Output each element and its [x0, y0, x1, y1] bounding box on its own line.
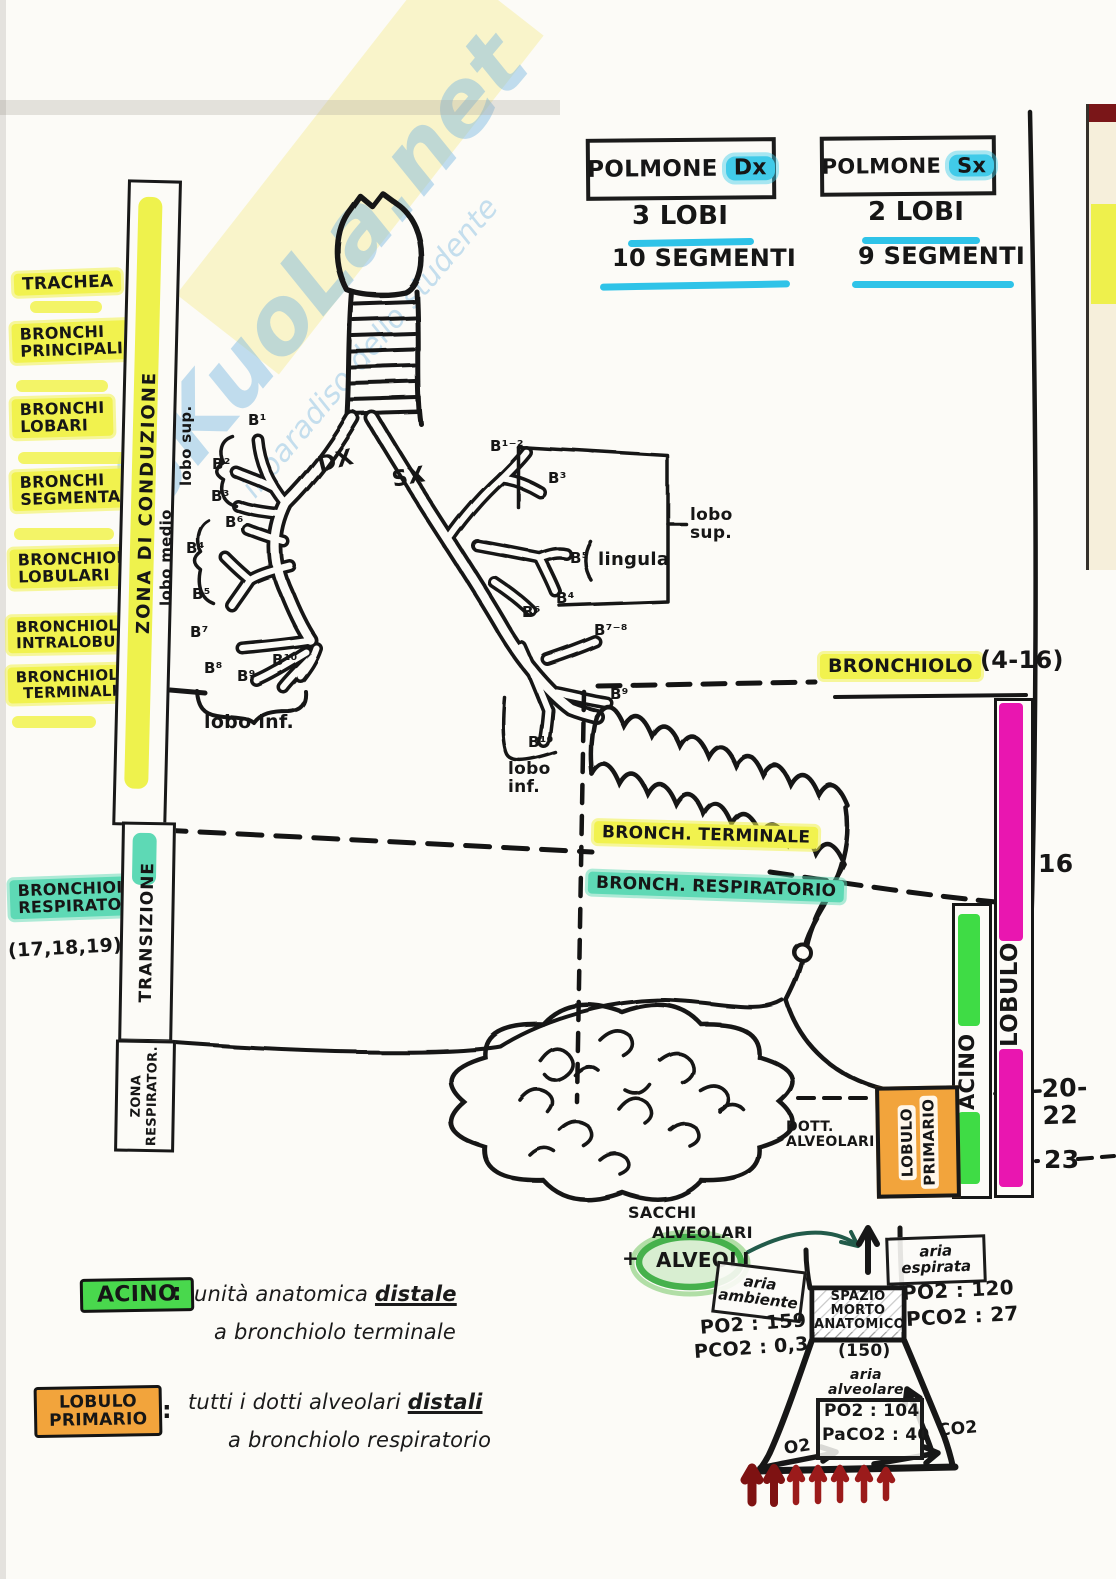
lobulo-primario-label-1: LOBULO: [898, 1105, 917, 1180]
left-lobo-sup: lobo sup.: [690, 506, 733, 543]
respiratory-zone-label-1: ZONA: [130, 1074, 145, 1117]
left-b1-2: B¹⁻²: [490, 438, 524, 454]
highlighter-mark: [30, 301, 102, 313]
right-b3: B³: [211, 488, 230, 504]
left-lung-side-badge: Sx: [949, 154, 994, 177]
lobulo-primario-definition-text: tutti i dotti alveolari: [188, 1390, 401, 1414]
lobulo-primario-definition-underlined: distali: [408, 1390, 483, 1414]
right-lobo-inf: lobo inf.: [204, 712, 294, 733]
lingula-label: lingula: [598, 550, 669, 569]
o2-label: O2: [783, 1436, 812, 1458]
highlighter-mark: [18, 452, 126, 464]
acino-highlight-bottom: [958, 1112, 980, 1184]
generation-16: 16: [1038, 850, 1073, 877]
right-lung-side-badge: Dx: [726, 156, 775, 180]
highlighter-mark: [12, 716, 96, 728]
alveolare-paco2: PaCO2 : 40: [822, 1426, 930, 1444]
right-lobo-medio: lobo medio: [158, 502, 174, 606]
lobulo-highlight-top: [999, 703, 1023, 941]
left-b4: B⁴: [556, 590, 575, 606]
right-b10: B¹⁰: [272, 652, 297, 668]
right-lung-lobes: 3 LOBI: [632, 202, 728, 230]
plus-sign: +: [622, 1248, 639, 1270]
acino-colon: :: [172, 1280, 182, 1306]
acino-definition-underlined: distale: [375, 1282, 457, 1306]
highlighter-mark: [14, 528, 114, 540]
transition-zone-bar: TRANSIZIONE: [118, 822, 176, 1043]
left-b10: B¹⁰: [528, 734, 553, 750]
acinus-alveoli-cluster: [451, 1005, 793, 1199]
left-lung-title-box: POLMONE Sx: [820, 135, 997, 197]
acino-definition-line1: unità anatomica distale: [194, 1282, 457, 1306]
capillary-blood-arrows: [745, 1468, 892, 1503]
lobulo-primario-box: LOBULO PRIMARIO: [875, 1085, 961, 1198]
aria-alveolare-label: aria alveolare: [828, 1368, 904, 1398]
lobulo-primario-term-box: LOBULO PRIMARIO: [34, 1385, 163, 1438]
co2-label: CO2: [937, 1418, 978, 1440]
transition-zone-label: TRANSIZIONE: [137, 862, 158, 1003]
left-b7-8: B⁷⁻⁸: [594, 622, 628, 638]
respiratory-zone-bar: ZONA RESPIRATOR.: [114, 1039, 176, 1152]
conduction-zone-label: ZONA DI CONDUZIONE: [134, 371, 160, 634]
left-lobo-inf: lobo inf.: [508, 760, 551, 797]
right-b2: B²: [212, 456, 231, 472]
lobulo-primario-label-2: PRIMARIO: [919, 1095, 939, 1188]
acino-definition-text: unità anatomica: [194, 1282, 368, 1306]
right-lung-title: POLMONE: [587, 156, 718, 182]
right-b1: B¹: [248, 412, 267, 428]
generation-20-22: 20-22: [1041, 1073, 1116, 1130]
left-lung-lobes: 2 LOBI: [868, 198, 964, 226]
right-b6: B⁶: [225, 514, 244, 530]
generation-23: 23: [1044, 1146, 1079, 1173]
dotti-alveolari-label: DOTT. ALVEOLARI: [786, 1120, 875, 1150]
acino-definition-line2: a bronchiolo terminale: [214, 1320, 456, 1344]
left-lung-segments-underline: [852, 281, 1014, 288]
left-lung-segments: 9 SEGMENTI: [858, 244, 1025, 270]
right-b5: B⁵: [192, 586, 211, 602]
right-lung-segments: 10 SEGMENTI: [612, 246, 796, 272]
left-b5: B⁵: [570, 550, 589, 566]
left-lung-title: POLMONE: [822, 154, 942, 178]
acino-bar-label: ACINO: [956, 1028, 979, 1110]
respiratory-bronchiole-duct: [591, 706, 957, 1097]
left-b3: B³: [548, 470, 567, 486]
lobulo-bar-label: LOBULO: [998, 943, 1023, 1047]
lobulo-primario-definition-line2: a bronchiolo respiratorio: [228, 1428, 491, 1452]
right-b7: B⁷: [190, 624, 209, 640]
sidebar-item-bronchi-principali: BRONCHI PRINCIPALI: [11, 320, 131, 363]
spazio-morto-label: SPAZIO MORTO ANATOMICO: [814, 1290, 902, 1332]
right-lung-title-box: POLMONE Dx: [586, 137, 777, 201]
lobulo-primario-colon: :: [162, 1398, 172, 1424]
bronchiolo-label: BRONCHIOLO: [820, 654, 981, 679]
lobulo-primario-definition-line1: tutti i dotti alveolari distali: [188, 1390, 483, 1414]
left-b9: B⁹: [610, 686, 629, 702]
acino-highlight-top: [958, 914, 980, 1026]
bronchiolo-range: (4-16): [980, 648, 1064, 674]
bronchial-tree: [195, 193, 686, 761]
scanned-notebook-page: SKuoLa.net il paradiso dello studente: [0, 0, 1116, 1579]
spazio-morto-volume: (150): [838, 1342, 891, 1360]
lobulo-highlight-bottom: [999, 1049, 1023, 1187]
right-b4: B⁴: [186, 540, 205, 556]
alveolare-po2: PO2 : 104: [824, 1402, 920, 1420]
sacchi-label: SACCHI: [628, 1204, 697, 1221]
sidebar-item-bronchi-lobari: BRONCHI LOBARI: [12, 397, 114, 438]
highlighter-mark: [16, 380, 108, 392]
right-b8: B⁸: [204, 660, 223, 676]
respiratory-zone-label-2: RESPIRATOR.: [145, 1046, 161, 1146]
sidebar-item-trachea: TRACHEA: [14, 270, 122, 296]
right-b9: B⁹: [237, 668, 256, 684]
lobulo-bar: LOBULO: [994, 698, 1034, 1198]
alveolari-label: ALVEOLARI: [652, 1224, 753, 1241]
right-lobo-sup: lobo sup.: [178, 398, 194, 486]
sidebar-item-bronchioli-terminali: BRONCHIOLI TERMINALI: [8, 664, 133, 704]
left-b6: B⁶: [522, 604, 541, 620]
